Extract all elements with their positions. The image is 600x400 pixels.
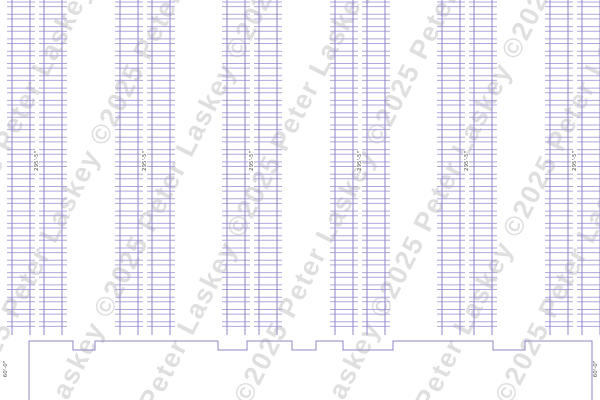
- cad-plan-drawing: Peter Laskey ©2025 Peter Laskey©2025 Pet…: [0, 0, 600, 400]
- rack-length-dimension-label: 295'-5": [142, 151, 148, 171]
- rack-length-dimension-label: 295'-5": [572, 151, 578, 171]
- rack-length-dimension-label: 295'-5": [464, 151, 470, 171]
- drawing-viewport: Peter Laskey ©2025 Peter Laskey©2025 Pet…: [0, 0, 600, 400]
- rack-length-dimension-label: 295'-5": [34, 151, 40, 171]
- rack-length-dimension-label: 295'-5": [249, 151, 255, 171]
- right-wall-dimension-label: 60'-0": [593, 361, 599, 378]
- left-wall-dimension-label: 60'-0": [3, 361, 9, 378]
- rack-length-dimension-label: 295'-5": [357, 151, 363, 171]
